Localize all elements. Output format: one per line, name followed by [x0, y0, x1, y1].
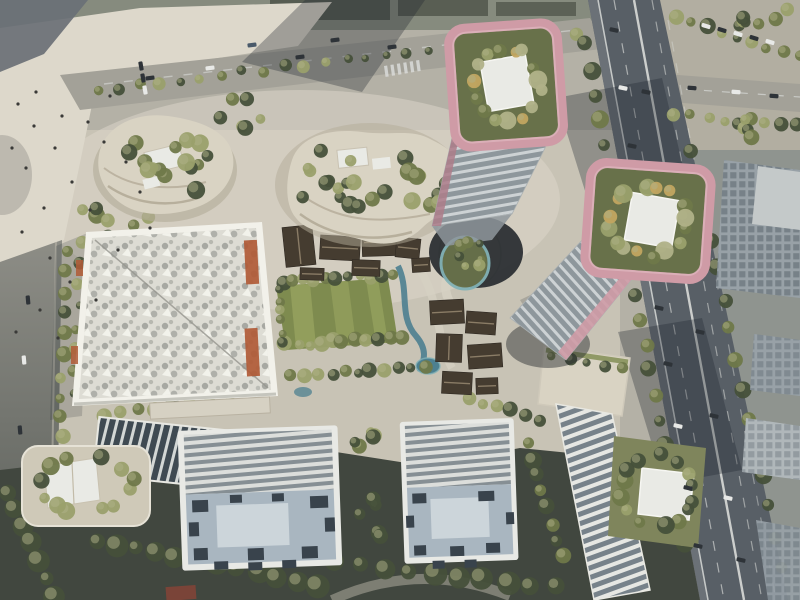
person: [38, 308, 41, 311]
tree-highlight: [237, 66, 242, 71]
tree-highlight: [141, 162, 150, 171]
tree-highlight: [613, 490, 623, 500]
tree-highlight: [343, 197, 353, 207]
roof-unit: [189, 522, 199, 536]
tree-highlight: [383, 52, 387, 56]
tree-highlight: [136, 79, 142, 85]
tree-highlight: [297, 192, 304, 199]
person: [32, 124, 35, 127]
tree-highlight: [315, 337, 324, 346]
tree-highlight: [641, 362, 650, 371]
tree-highlight: [535, 485, 541, 491]
tree-highlight: [239, 121, 248, 130]
tree-highlight: [72, 326, 77, 331]
tree-highlight: [525, 453, 535, 463]
tree-highlight: [107, 536, 120, 549]
person: [94, 298, 97, 301]
tree-highlight: [687, 18, 692, 23]
person: [88, 208, 91, 211]
tree-highlight: [683, 504, 690, 511]
tree-highlight: [651, 183, 658, 190]
tree-highlight: [640, 180, 650, 190]
tree-highlight: [115, 407, 122, 414]
tree-highlight: [56, 394, 61, 399]
rooftop-volume: [372, 157, 391, 170]
tree-highlight: [349, 333, 357, 341]
tree-highlight: [59, 288, 67, 296]
tree-highlight: [468, 75, 476, 83]
tree-highlight: [599, 140, 605, 146]
tree-highlight: [635, 518, 641, 524]
orange-fin-west: [71, 346, 78, 364]
tree-highlight: [655, 448, 663, 456]
roof-unit: [194, 548, 208, 560]
tree-highlight: [425, 47, 429, 51]
tree-highlight: [227, 93, 234, 100]
tree-highlight: [770, 13, 778, 21]
tree-highlight: [650, 390, 658, 398]
tree-highlight: [343, 272, 349, 278]
tree-highlight: [133, 404, 140, 411]
roof-unit: [478, 491, 494, 502]
person: [24, 166, 27, 169]
tree-highlight: [462, 263, 466, 267]
tree-highlight: [129, 136, 138, 145]
tree-highlight: [102, 215, 110, 223]
roof-unit: [282, 560, 296, 568]
tree-highlight: [63, 247, 69, 253]
tree-highlight: [547, 519, 554, 526]
person: [56, 336, 59, 339]
tree-highlight: [723, 322, 730, 329]
tree-highlight: [276, 306, 281, 311]
roof-unit: [325, 517, 335, 531]
roof-unit: [412, 493, 426, 503]
tree-highlight: [72, 279, 79, 286]
car: [22, 355, 27, 364]
roof-unit: [248, 562, 262, 570]
tree-highlight: [684, 145, 692, 153]
orange-fin: [244, 240, 259, 285]
tree-highlight: [22, 533, 34, 545]
tree-highlight: [91, 535, 100, 544]
slab-deck-panel: [430, 497, 489, 539]
tree-highlight: [95, 87, 100, 92]
tree-highlight: [705, 113, 711, 119]
tree-highlight: [642, 340, 650, 348]
tree-highlight: [394, 362, 401, 369]
residential-slab-west: [178, 425, 343, 572]
tree-highlight: [129, 220, 135, 226]
pavilion-ridge: [478, 386, 496, 387]
tree-highlight: [648, 252, 655, 259]
tree-highlight: [355, 509, 361, 515]
tree-highlight: [122, 145, 131, 154]
tree-highlight: [29, 551, 41, 563]
tree-highlight: [315, 145, 323, 153]
tree-highlight: [298, 61, 305, 68]
person: [124, 160, 127, 163]
tree-highlight: [296, 340, 301, 345]
tree-highlight: [58, 326, 66, 334]
tree-highlight: [736, 383, 745, 392]
orange-fin: [244, 328, 259, 377]
tree-highlight: [728, 353, 737, 362]
tree-highlight: [539, 499, 548, 508]
hall-diagrid-pattern: [79, 228, 271, 399]
tree-highlight: [54, 410, 61, 417]
tree-highlight: [474, 260, 481, 267]
pavilion: [465, 311, 496, 335]
tree-highlight: [518, 114, 524, 120]
rooftop-pad: [480, 54, 534, 111]
car: [687, 86, 696, 91]
tree-highlight: [685, 110, 690, 115]
tree-highlight: [655, 416, 661, 422]
slab-skylight-ribs: [184, 429, 334, 494]
tree-highlight: [733, 118, 740, 125]
tree-highlight: [43, 458, 53, 468]
tree-highlight: [276, 286, 281, 291]
tree-highlight: [320, 176, 329, 185]
tree-highlight: [402, 565, 410, 573]
scene-svg: [0, 0, 800, 600]
car: [731, 90, 740, 95]
person: [48, 256, 51, 259]
tree-highlight: [280, 60, 287, 67]
roof-unit: [506, 512, 514, 524]
tree-highlight: [683, 468, 690, 475]
tree-highlight: [177, 78, 182, 83]
tree-highlight: [97, 503, 104, 510]
tree-highlight: [335, 335, 343, 343]
tree-highlight: [355, 369, 360, 374]
pavilion: [441, 371, 472, 395]
tree-highlight: [675, 238, 682, 245]
person: [68, 280, 71, 283]
tree-highlight: [165, 548, 177, 560]
car-body: [769, 94, 778, 99]
pavilion: [352, 260, 381, 277]
pavilion: [476, 378, 499, 395]
pavilion: [300, 268, 324, 281]
tree-highlight: [40, 494, 46, 500]
tree-highlight: [68, 366, 75, 373]
tree-highlight: [620, 463, 629, 472]
tree-highlight: [455, 252, 460, 257]
tree-highlight: [450, 569, 462, 581]
person: [14, 330, 17, 333]
tree-highlight: [478, 105, 486, 113]
tree-highlight: [590, 90, 597, 97]
tree-highlight: [754, 19, 760, 25]
tree-highlight: [528, 63, 535, 70]
roof-unit: [465, 559, 477, 567]
roof-unit: [302, 546, 318, 559]
roof-unit: [214, 561, 228, 569]
tree-highlight: [791, 118, 799, 126]
tree-highlight: [494, 45, 502, 53]
tree-highlight: [524, 438, 530, 444]
car-body: [22, 355, 27, 364]
tree-highlight: [658, 517, 668, 527]
roof-unit: [406, 516, 414, 528]
tree-highlight: [360, 335, 367, 342]
office-roof-light: [752, 166, 800, 230]
pavilion-ridge: [354, 268, 378, 269]
tree-highlight: [629, 289, 637, 297]
person: [116, 248, 119, 251]
pavilion-ridge: [449, 336, 450, 360]
tree-highlight: [218, 72, 223, 77]
tree-highlight: [492, 400, 499, 407]
tree-highlight: [720, 295, 728, 303]
tree-highlight: [50, 498, 59, 507]
tree-highlight: [378, 185, 387, 194]
tree-highlight: [59, 306, 66, 313]
tree-highlight: [535, 416, 542, 423]
tree-highlight: [687, 480, 694, 487]
car: [769, 94, 778, 99]
aerial-rendering: [0, 0, 800, 600]
tree-highlight: [91, 203, 98, 210]
tree-highlight: [516, 45, 523, 52]
tree-highlight: [345, 55, 350, 60]
tree-highlight: [366, 193, 374, 201]
pavilion-ridge: [302, 274, 322, 275]
tree-highlight: [571, 29, 578, 36]
person: [16, 102, 19, 105]
tree-highlight: [313, 369, 320, 376]
tree-highlight: [147, 543, 158, 554]
tree-highlight: [672, 457, 679, 464]
tree-highlight: [322, 58, 327, 63]
orange-fin-west: [76, 260, 83, 276]
tree-highlight: [396, 331, 404, 339]
tree-highlight: [745, 131, 754, 140]
tree-highlight: [618, 363, 624, 369]
tree-highlight: [352, 200, 360, 208]
tree-highlight: [329, 370, 336, 377]
roof-unit: [486, 543, 500, 553]
tree-highlight: [721, 118, 726, 123]
tree-highlight: [522, 579, 532, 589]
tree-highlight: [108, 501, 115, 508]
tree-highlight: [362, 55, 366, 59]
tree-highlight: [632, 454, 640, 462]
tree-highlight: [462, 237, 469, 244]
pavilion-ridge: [414, 265, 428, 266]
slab-skylight-ribs: [405, 422, 511, 488]
far-building: [496, 2, 576, 16]
tree-highlight: [530, 72, 540, 82]
exhibition-hall: [71, 222, 278, 419]
tree-highlight: [551, 536, 557, 542]
tree-highlight: [346, 156, 352, 162]
tree-highlight: [377, 561, 388, 572]
tree-highlight: [763, 500, 770, 507]
tree-highlight: [760, 118, 766, 124]
tree-highlight: [782, 4, 789, 11]
tree-highlight: [657, 243, 667, 253]
tree-highlight: [409, 169, 419, 179]
tree-highlight: [57, 347, 66, 356]
tree-highlight: [341, 366, 348, 373]
person: [34, 90, 37, 93]
tree-highlight: [259, 68, 265, 74]
tree-highlight: [276, 298, 281, 303]
person: [60, 114, 63, 117]
tree-highlight: [578, 37, 586, 45]
tree-highlight: [354, 558, 362, 566]
person: [20, 230, 23, 233]
tree-highlight: [256, 115, 261, 120]
tree-highlight: [670, 11, 678, 19]
tree-highlight: [308, 576, 321, 589]
tree-highlight: [329, 272, 337, 280]
tree-highlight: [115, 463, 123, 471]
tree-highlight: [473, 59, 480, 66]
tree-highlight: [686, 496, 694, 504]
tree-highlight: [195, 75, 200, 80]
tree-highlight: [737, 12, 745, 20]
rooftop-pad: [624, 192, 680, 248]
tree-highlight: [188, 182, 198, 192]
tree-highlight: [762, 44, 767, 49]
person: [53, 146, 56, 149]
tree-highlight: [278, 277, 286, 285]
tree-highlight: [634, 314, 642, 322]
tree-highlight: [285, 370, 292, 377]
roof-unit: [450, 546, 464, 556]
pavilion: [429, 299, 464, 325]
tree-highlight: [585, 63, 595, 73]
tree-highlight: [504, 403, 512, 411]
slab-deck-panel: [216, 503, 289, 547]
tree-highlight: [549, 579, 558, 588]
roof-unit: [310, 496, 328, 509]
tree-highlight: [130, 541, 138, 549]
car-body: [687, 86, 696, 91]
person: [148, 226, 151, 229]
tree-highlight: [401, 49, 407, 55]
tree-highlight: [622, 505, 628, 511]
person: [10, 146, 13, 149]
tree-highlight: [59, 265, 67, 273]
roof-unit: [433, 561, 445, 569]
tree-highlight: [179, 155, 189, 165]
tree-highlight: [479, 400, 485, 406]
tree-highlight: [482, 49, 489, 56]
tree-highlight: [420, 361, 427, 368]
pavilion: [412, 257, 431, 272]
tree-highlight: [388, 270, 394, 276]
person: [86, 120, 89, 123]
person: [70, 180, 73, 183]
pavilion: [436, 334, 463, 363]
tree-highlight: [367, 493, 375, 501]
tree-highlight: [45, 587, 57, 599]
tree-highlight: [378, 364, 386, 372]
tree-highlight: [678, 199, 687, 208]
tree-highlight: [289, 573, 300, 584]
tree-highlight: [350, 438, 356, 444]
person: [102, 140, 105, 143]
office-windows: [742, 418, 800, 480]
roof-unit: [248, 548, 264, 561]
tree-highlight: [385, 332, 393, 340]
tree-highlight: [405, 193, 414, 202]
tree-highlight: [78, 205, 84, 211]
tree-highlight: [1, 486, 10, 495]
red-roof: [166, 585, 197, 600]
pavilion: [467, 343, 503, 369]
tree-highlight: [472, 569, 485, 582]
tree-highlight: [154, 78, 161, 85]
red-roof-small: [166, 585, 197, 600]
car-body: [18, 425, 23, 434]
tree-highlight: [668, 109, 675, 116]
tree-highlight: [34, 474, 43, 483]
tree-highlight: [180, 133, 189, 142]
tree-highlight: [279, 331, 283, 335]
pond-small: [294, 387, 312, 397]
tree-highlight: [56, 373, 62, 379]
car-body: [731, 90, 740, 95]
office-windows: [750, 334, 800, 396]
tree-highlight: [363, 364, 371, 372]
tree-highlight: [298, 369, 306, 377]
tree-highlight: [632, 246, 638, 252]
tree-highlight: [678, 210, 688, 220]
tree-highlight: [287, 275, 294, 282]
person: [108, 94, 111, 97]
car: [18, 425, 23, 434]
tree-highlight: [665, 186, 671, 192]
tree-highlight: [530, 468, 538, 476]
tree-highlight: [94, 450, 103, 459]
person: [138, 190, 141, 193]
tree-highlight: [241, 93, 249, 101]
roof-unit: [192, 500, 208, 513]
residential-slab-east: [400, 418, 519, 570]
tree-highlight: [215, 112, 223, 120]
tree-highlight: [77, 237, 84, 244]
tree-highlight: [527, 102, 534, 109]
car: [26, 295, 31, 304]
tree-highlight: [741, 115, 747, 121]
tree-highlight: [476, 240, 480, 244]
roof-unit: [272, 493, 284, 501]
tree-highlight: [490, 115, 497, 122]
tree-highlight: [407, 364, 412, 369]
tree-highlight: [347, 176, 356, 185]
tree-highlight: [779, 46, 786, 53]
tree-highlight: [471, 93, 478, 100]
tree-highlight: [170, 142, 177, 149]
roof-unit: [414, 545, 426, 555]
tree-highlight: [615, 186, 625, 196]
tree-highlight: [128, 472, 136, 480]
tree-highlight: [611, 237, 619, 245]
tree-highlight: [600, 361, 607, 368]
tree-highlight: [41, 573, 48, 580]
tree-highlight: [520, 410, 527, 417]
tree-highlight: [372, 333, 380, 341]
tree-highlight: [583, 359, 588, 364]
tree-highlight: [604, 211, 612, 219]
tree-highlight: [6, 501, 16, 511]
